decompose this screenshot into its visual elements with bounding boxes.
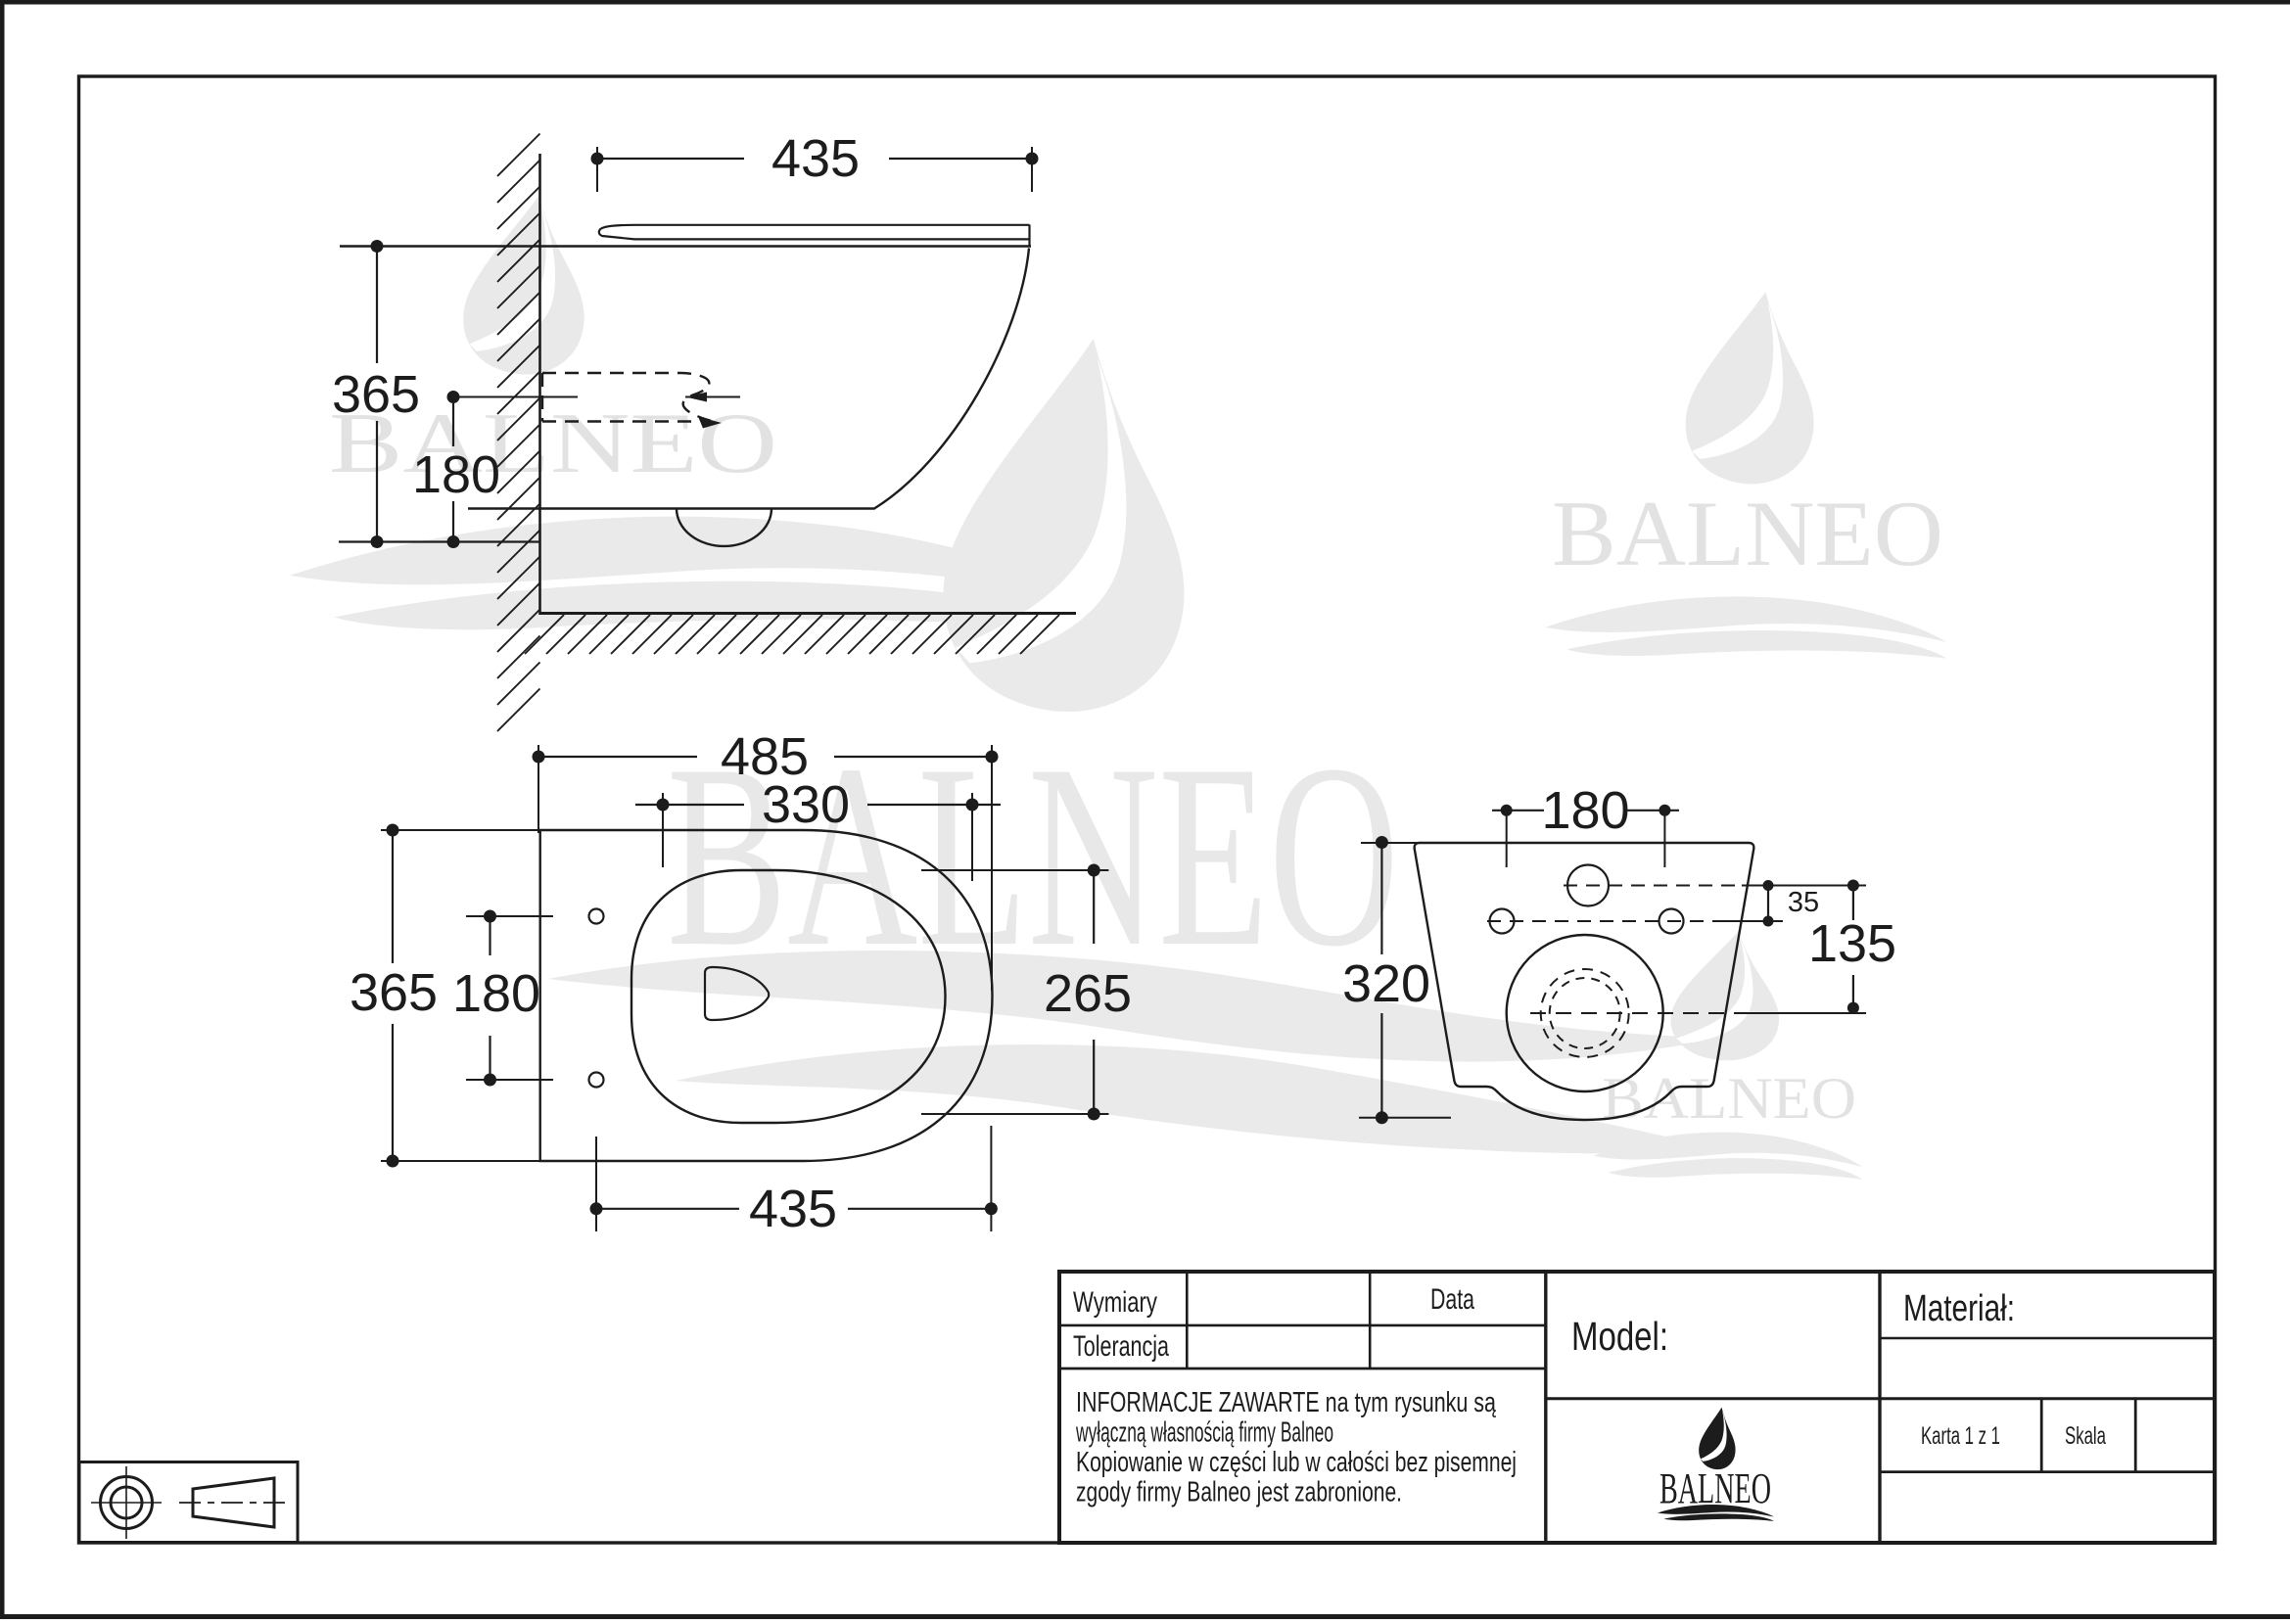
svg-text:Karta 1 z 1: Karta 1 z 1 bbox=[1921, 1422, 2000, 1450]
svg-text:BALNEO: BALNEO bbox=[1602, 1066, 1856, 1131]
svg-text:wyłączną własnością firmy Baln: wyłączną własnością firmy Balneo bbox=[1075, 1417, 1333, 1449]
svg-text:Wymiary: Wymiary bbox=[1073, 1286, 1157, 1319]
svg-text:Kopiowanie w części lub w cało: Kopiowanie w części lub w całości bez pi… bbox=[1076, 1447, 1517, 1478]
svg-text:330: 330 bbox=[762, 775, 850, 834]
svg-text:BALNEO: BALNEO bbox=[1552, 482, 1943, 585]
svg-text:180: 180 bbox=[412, 445, 500, 504]
svg-text:135: 135 bbox=[1808, 914, 1896, 973]
svg-text:Skala: Skala bbox=[2065, 1422, 2106, 1450]
svg-text:Tolerancja: Tolerancja bbox=[1073, 1330, 1169, 1363]
svg-text:Data: Data bbox=[1430, 1283, 1474, 1316]
svg-text:435: 435 bbox=[771, 129, 860, 188]
svg-text:Model:: Model: bbox=[1571, 1314, 1668, 1359]
svg-text:Materiał:: Materiał: bbox=[1903, 1288, 2015, 1329]
svg-text:180: 180 bbox=[1541, 781, 1629, 840]
svg-text:365: 365 bbox=[350, 963, 438, 1022]
svg-text:INFORMACJE ZAWARTE na tym rysu: INFORMACJE ZAWARTE na tym rysunku są bbox=[1076, 1387, 1496, 1418]
svg-text:365: 365 bbox=[332, 365, 420, 424]
svg-text:435: 435 bbox=[749, 1180, 837, 1238]
svg-text:320: 320 bbox=[1342, 954, 1430, 1013]
svg-text:265: 265 bbox=[1044, 964, 1132, 1023]
svg-text:180: 180 bbox=[452, 964, 540, 1023]
svg-text:zgody firmy Balneo jest zabron: zgody firmy Balneo jest zabronione. bbox=[1076, 1477, 1402, 1508]
